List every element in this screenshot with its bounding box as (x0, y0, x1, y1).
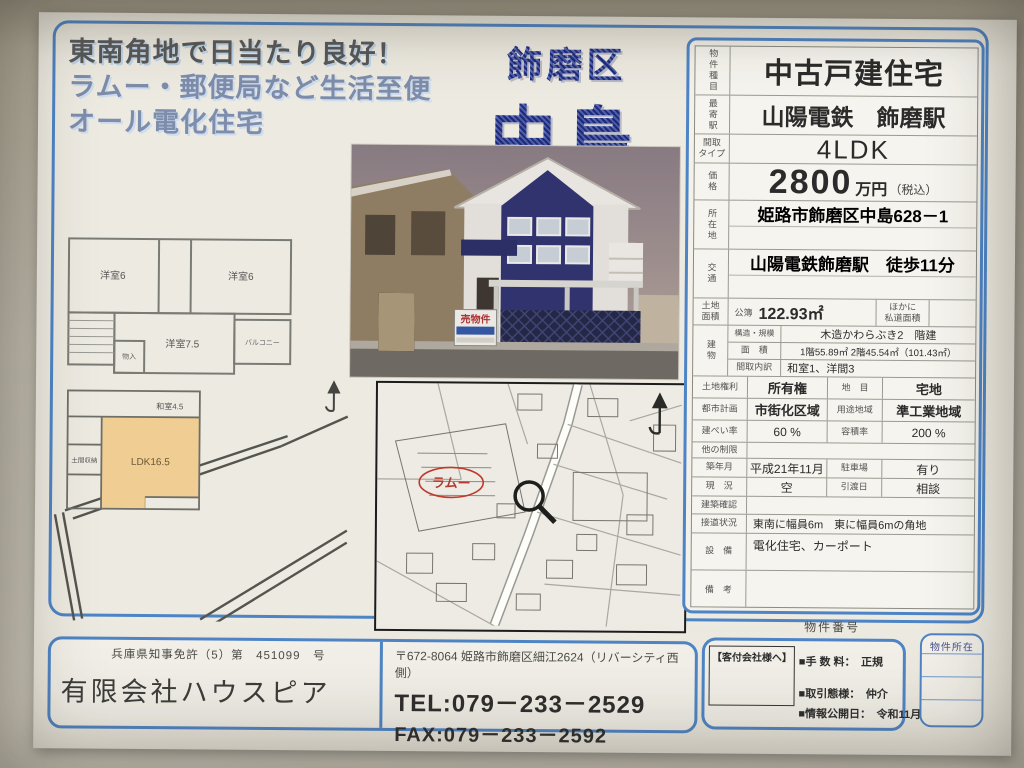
road-label: 接道状況 (692, 514, 747, 532)
other-restrictions-label: 他の制限 (692, 442, 747, 457)
agent-box: 【客付会社様へ】 ■手 数 料： 正規 ■取引態様： 仲介 ■情報公開日： 令和… (701, 637, 906, 731)
land-area-note: ほかに 私道面積 (876, 300, 929, 326)
station-label: 最寄駅 (695, 95, 730, 133)
confirm-label: 建築確認 (692, 496, 747, 513)
price-label: 価格 (694, 163, 729, 199)
room-label-2f-a: 洋室6 (100, 269, 126, 282)
property-location-box: 物件所在 (919, 633, 984, 727)
building-area-value: 1階55.89㎡ 2階45.54㎡（101.43㎡） (781, 343, 975, 361)
city-plan-value: 市街化区域 (748, 399, 828, 421)
row-built: 築年月 平成21年11月 駐車場 有り (692, 458, 974, 479)
property-location-row-2 (922, 676, 982, 699)
building-rooms-label: 間取内訳 (728, 360, 781, 376)
license-number: 兵庫県知事免許（5）第 451099 号 (61, 645, 376, 663)
land-register: 公簿 (735, 305, 753, 318)
confirm-value (747, 497, 974, 516)
zoning-label: 用途地域 (828, 399, 883, 420)
catch-line-1: 東南角地で日当たり良好！ (68, 34, 431, 72)
row-access: 交通 山陽電鉄飾磨駅 徒歩11分 (694, 249, 976, 300)
published-line: ■情報公開日： 令和11月 (798, 705, 921, 722)
title-district: 飾磨区 (436, 35, 696, 89)
price-unit: 万円 (855, 176, 887, 200)
property-location-row-1 (922, 653, 982, 676)
agent-header: 【客付会社様へ】 (708, 645, 794, 706)
land-right-value: 所有権 (748, 377, 828, 399)
row-building: 建物 構造・規模 木造かわらぶき2 階建 面 積 1階55.89㎡ 2階45.5… (693, 325, 975, 378)
station-value: 山陽電鉄 飾磨駅 (730, 96, 977, 136)
status-value: 空 (747, 478, 827, 497)
house-photo: 売物件 (350, 145, 680, 380)
map-store-label: ラムー (432, 475, 471, 490)
row-location: 所在地 姫路市飾磨区中島628－1 (694, 200, 976, 251)
fee-line: ■手 数 料： 正規 (799, 653, 883, 670)
property-type-value: 中古戸建住宅 (730, 47, 977, 97)
transaction-line: ■取引態様： 仲介 (799, 685, 888, 702)
row-land-right: 土地権利 所有権 地 目 宅地 (693, 376, 975, 400)
city-plan-label: 都市計画 (693, 398, 748, 419)
ldk-label: LDK16.5 (131, 457, 170, 468)
layout-value: 4LDK (730, 135, 977, 165)
building-structure-value: 木造かわらぶき2 階建 (781, 326, 975, 344)
coverage-value: 60 % (748, 421, 828, 443)
status-label: 現 況 (692, 477, 747, 495)
price-value: 2800 (769, 164, 853, 202)
catch-copy: 東南角地で日当たり良好！ ラムー・郵便局など生活至便 オール電化住宅 (68, 34, 432, 142)
row-equipment: 設 備 電化住宅、カーポート (692, 533, 974, 572)
floorplan-2f-drawing: 洋室6 洋室6 洋室7.5 バルコニー 物入 (56, 222, 347, 380)
spec-table: 物件種目 中古戸建住宅 最寄駅 山陽電鉄 飾磨駅 間取 タイプ 4LDK 価格 … (682, 37, 985, 615)
row-confirm: 建築確認 (692, 496, 974, 516)
company-box: 兵庫県知事免許（5）第 451099 号 有限会社ハウスピア 〒672-8064… (47, 636, 698, 733)
property-number-caption: 物件番号 (804, 618, 860, 635)
equipment-label: 設 備 (692, 533, 747, 569)
building-area-label: 面 積 (728, 343, 781, 359)
catch-line-2: ラムー・郵便局など生活至便 (68, 69, 431, 107)
room-label-2f-c: 洋室7.5 (165, 337, 199, 350)
location-value: 姫路市飾磨区中島628－1 (729, 201, 976, 229)
land-cat-value: 宅地 (883, 378, 975, 400)
row-price: 価格 2800 万円 （税込） (694, 163, 976, 202)
room-label-2f-b: 洋室6 (228, 270, 254, 283)
price-tax-note: （税込） (889, 180, 937, 197)
built-label: 築年月 (692, 458, 747, 476)
row-road: 接道状況 東南に幅員6m 東に幅員6mの角地 (692, 514, 974, 535)
location-map: ラムー (374, 381, 688, 633)
far-value: 200 % (883, 422, 975, 444)
building-rooms-value: 和室1、洋間3 (781, 360, 975, 378)
equipment-value: 電化住宅、カーポート (747, 534, 974, 572)
floorplan-1f-drawing: LDK16.5 和室4.5 土間収納 (48, 378, 350, 622)
other-restrictions-value (747, 443, 974, 460)
land-right-label: 土地権利 (693, 376, 748, 397)
location-label: 所在地 (694, 200, 729, 248)
access-value-blank (729, 276, 976, 300)
closet-label: 物入 (122, 352, 136, 361)
property-type-label: 物件種目 (695, 46, 730, 94)
handover-label: 引渡日 (827, 478, 882, 496)
road-value: 東南に幅員6m 東に幅員6mの角地 (747, 515, 974, 535)
property-location-row-3 (921, 699, 981, 722)
company-address: 〒672-8064 姫路市飾磨区細江2624（リバーシティ西側） (395, 647, 689, 683)
row-layout: 間取 タイプ 4LDK (695, 134, 977, 165)
floorplan-2f: 洋室6 洋室6 洋室7.5 バルコニー 物入 (56, 222, 347, 380)
building-structure-label: 構造・規模 (728, 326, 781, 342)
access-label: 交通 (694, 249, 729, 297)
building-rooms-row: 間取内訳 和室1、洋間3 (728, 360, 975, 378)
building-area-row: 面 積 1階55.89㎡ 2階45.54㎡（101.43㎡） (728, 343, 975, 362)
land-cat-label: 地 目 (828, 377, 883, 398)
balcony-label: バルコニー (245, 339, 280, 347)
doma-label: 土間収納 (71, 455, 97, 464)
parking-value: 有り (882, 460, 974, 479)
built-value: 平成21年11月 (747, 459, 827, 478)
contact-cell: 〒672-8064 姫路市飾磨区細江2624（リバーシティ西側） TEL:079… (382, 642, 695, 730)
row-city-plan: 都市計画 市街化区域 用途地域 準工業地域 (693, 398, 975, 422)
remarks-label: 備 考 (691, 570, 746, 609)
land-area-label: 土地 面積 (693, 298, 728, 324)
land-area-extra-blank (929, 300, 975, 326)
layout-label: 間取 タイプ (695, 134, 730, 162)
building-label: 建物 (693, 325, 728, 375)
zoning-value: 準工業地域 (883, 400, 975, 422)
washitsu-label: 和室4.5 (156, 401, 184, 411)
parking-label: 駐車場 (827, 459, 882, 477)
floorplan-1f-lot: LDK16.5 和室4.5 土間収納 (48, 378, 350, 622)
catch-line-3: オール電化住宅 (68, 104, 431, 142)
flyer-paper: 東南角地で日当たり良好！ ラムー・郵便局など生活至便 オール電化住宅 飾磨区 中… (33, 12, 1017, 756)
row-property-type: 物件種目 中古戸建住宅 (695, 46, 977, 97)
row-remarks: 備 考 (691, 570, 973, 609)
far-label: 容積率 (828, 421, 883, 442)
row-status: 現 況 空 引渡日 相談 (692, 477, 974, 498)
location-value-blank (729, 227, 976, 251)
property-location-header: 物件所在 (922, 635, 982, 653)
row-coverage: 建ぺい率 60 % 容積率 200 % (693, 420, 975, 444)
building-structure-row: 構造・規模 木造かわらぶき2 階建 (728, 326, 975, 345)
photo-of-flyer: 東南角地で日当たり良好！ ラムー・郵便局など生活至便 オール電化住宅 飾磨区 中… (0, 0, 1024, 768)
access-value: 山陽電鉄飾磨駅 徒歩11分 (729, 250, 976, 278)
coverage-label: 建ぺい率 (693, 420, 748, 441)
company-tel: TEL:079－233－2529 (394, 683, 688, 720)
company-cell: 兵庫県知事免許（5）第 451099 号 有限会社ハウスピア (50, 639, 383, 728)
remarks-value (746, 571, 973, 610)
north-arrow-icon (326, 382, 339, 411)
house-photo-drawing: 売物件 (350, 145, 680, 380)
company-name: 有限会社ハウスピア (60, 669, 375, 710)
land-area-value: 122.93㎡ (758, 300, 823, 325)
row-station: 最寄駅 山陽電鉄 飾磨駅 (695, 95, 977, 136)
company-fax: FAX:079－233－2592 (394, 718, 688, 749)
row-land-area: 土地 面積 公簿 122.93㎡ ほかに 私道面積 (693, 298, 975, 327)
map-drawing: ラムー (376, 383, 682, 627)
handover-value: 相談 (882, 479, 974, 498)
